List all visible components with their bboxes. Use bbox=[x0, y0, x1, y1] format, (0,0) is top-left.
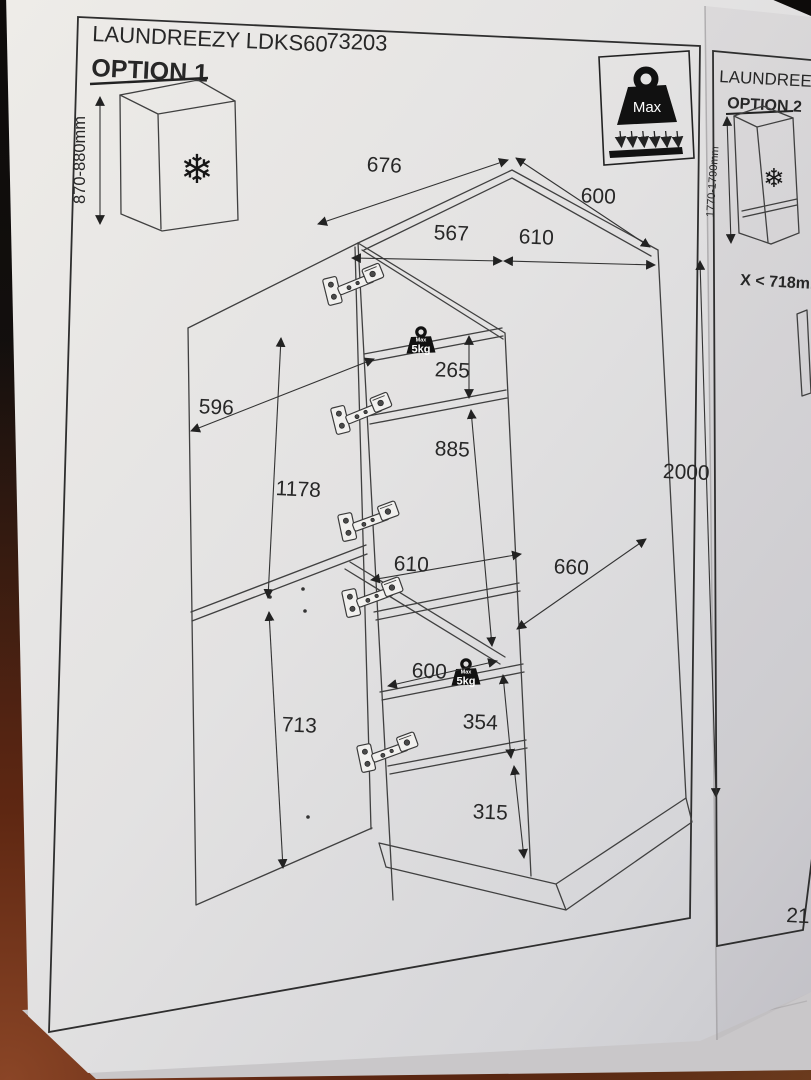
page1-product-code: 73203 bbox=[326, 28, 388, 56]
max-label: Max bbox=[633, 99, 662, 116]
badge2-weight: 5kg bbox=[457, 676, 476, 688]
manual-photo-svg: LAUNDREEZY LDKS60 73203 OPTION 1 870-880… bbox=[0, 0, 811, 1080]
page-number: 21 bbox=[786, 904, 811, 928]
photo-of-instruction-manual: LAUNDREEZY LDKS60 73203 OPTION 1 870-880… bbox=[0, 0, 811, 1080]
dim-315: 315 bbox=[472, 800, 508, 825]
dim-600-low: 600 bbox=[411, 659, 447, 684]
snowflake-icon: ❄ bbox=[763, 164, 785, 194]
badge1-weight: 5kg bbox=[412, 344, 431, 356]
snowflake-icon: ❄ bbox=[180, 147, 214, 193]
dim-610-mid: 610 bbox=[393, 552, 429, 577]
dim-600-top: 600 bbox=[580, 184, 616, 209]
dim-610-top: 610 bbox=[518, 225, 554, 250]
dim-2000: 2000 bbox=[662, 460, 710, 485]
dim-354: 354 bbox=[462, 710, 498, 735]
dim-567: 567 bbox=[433, 221, 469, 246]
dim-1178: 1178 bbox=[275, 477, 321, 502]
dim-596: 596 bbox=[198, 395, 234, 420]
dim-885: 885 bbox=[434, 437, 470, 462]
dim-265: 265 bbox=[434, 358, 470, 383]
dim-676: 676 bbox=[366, 153, 402, 178]
dim-713: 713 bbox=[281, 713, 317, 738]
dim-660: 660 bbox=[553, 555, 589, 580]
niche-height-label: 870-880mm bbox=[71, 116, 89, 204]
